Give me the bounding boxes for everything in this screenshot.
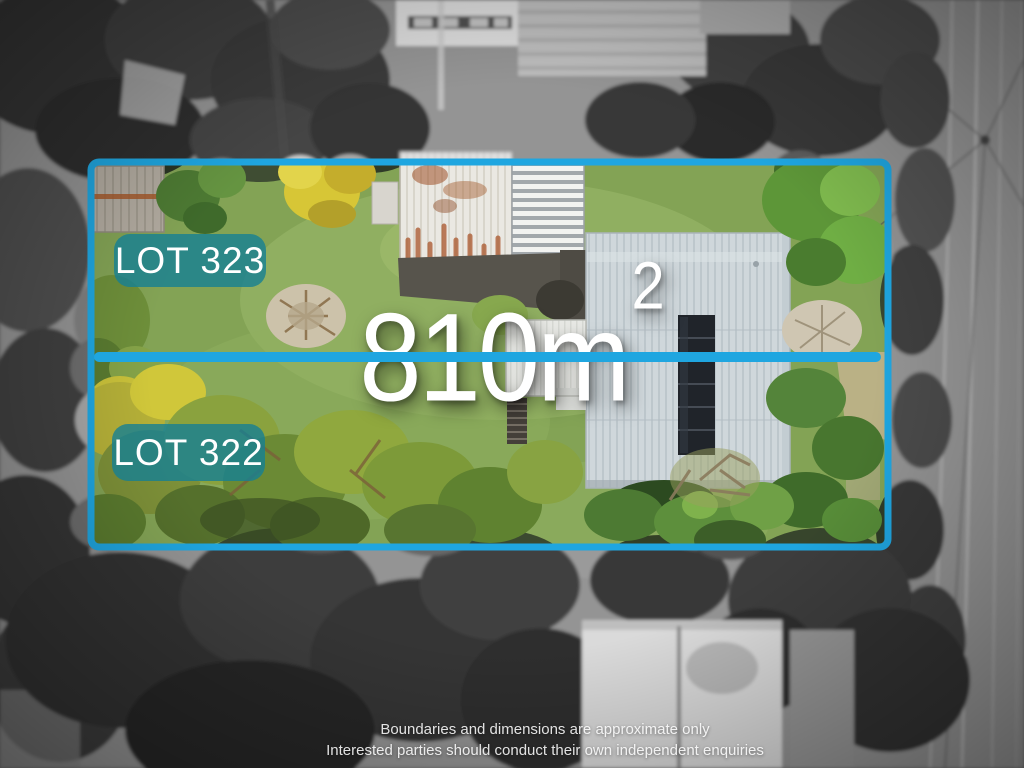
lot-323-label: LOT 323 xyxy=(115,240,265,282)
aerial-photo-stage: 810m2 LOT 323 LOT 322 Boundaries and dim… xyxy=(0,0,1024,768)
lot-322-label: LOT 322 xyxy=(113,432,263,474)
disclaimer-line-2: Interested parties should conduct their … xyxy=(66,740,1024,762)
lot-322-badge: LOT 322 xyxy=(112,424,265,481)
disclaimer: Boundaries and dimensions are approximat… xyxy=(66,719,1024,763)
lot-323-badge: LOT 323 xyxy=(114,234,266,287)
aerial-photo xyxy=(0,0,1024,768)
disclaimer-line-1: Boundaries and dimensions are approximat… xyxy=(66,719,1024,741)
